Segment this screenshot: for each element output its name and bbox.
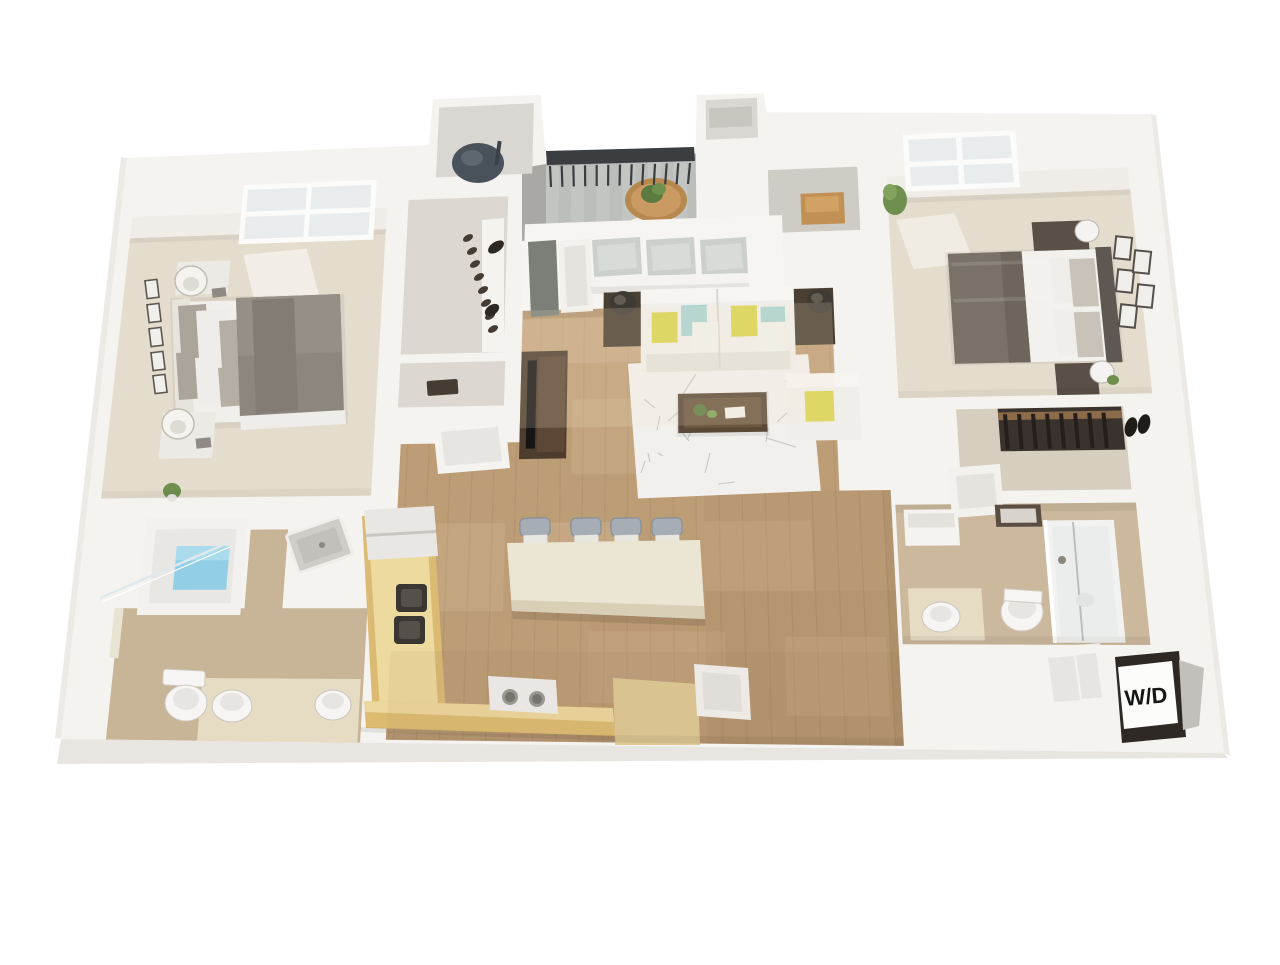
svg-text:W/D: W/D (1124, 682, 1169, 711)
